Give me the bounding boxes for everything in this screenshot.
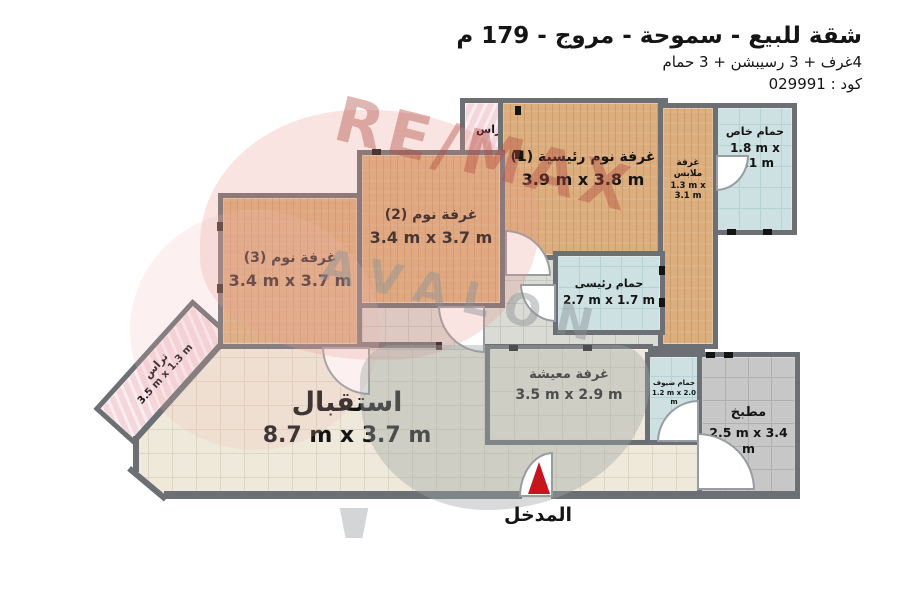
room-name: غرفة نوم رئيسية (1) bbox=[503, 149, 663, 167]
window-tick bbox=[515, 150, 521, 159]
wall-left-vertical bbox=[133, 436, 139, 472]
room-name: حمام رئيسى bbox=[558, 277, 660, 291]
room-name: مطبخ bbox=[702, 405, 795, 421]
wall-bottom-right bbox=[551, 491, 800, 499]
wall-hall-reception bbox=[358, 342, 442, 348]
room-dims: 2.7 m x 1.7 m bbox=[558, 293, 660, 308]
room-dims: 3.4 m x 3.7 m bbox=[362, 228, 500, 248]
room-bedroom-3: غرفة نوم (3) 3.4 m x 3.7 m bbox=[218, 193, 362, 349]
window-tick bbox=[436, 342, 442, 350]
listing-title: شقة للبيع - سموحة - مروج - 179 م bbox=[456, 22, 862, 51]
listing-subtitle: 4غرف + 3 رسيبشن + 3 حمام bbox=[456, 53, 862, 71]
room-main-bathroom: حمام رئيسى 2.7 m x 1.7 m bbox=[553, 251, 665, 335]
room-reception-label: استقبال 8.7 m x 3.7 m bbox=[252, 386, 442, 449]
window-tick bbox=[372, 149, 381, 155]
room-name: غرفة نوم (2) bbox=[362, 207, 500, 225]
watermark-basket-shape bbox=[337, 508, 371, 538]
window-tick bbox=[724, 352, 733, 358]
room-dims: 3.5 m x 2.9 m bbox=[490, 387, 648, 405]
wall-guestbath-top bbox=[650, 346, 705, 354]
room-name: حمام ضيوف bbox=[650, 379, 698, 388]
window-tick bbox=[659, 298, 665, 307]
window-tick bbox=[583, 345, 592, 351]
window-tick bbox=[706, 352, 715, 358]
room-dims: 3.4 m x 3.7 m bbox=[223, 271, 357, 291]
room-bedroom-2: غرفة نوم (2) 3.4 m x 3.7 m bbox=[357, 150, 505, 308]
window-tick bbox=[217, 284, 223, 293]
floor-plan-page: شقة للبيع - سموحة - مروج - 179 م 4غرف + … bbox=[0, 0, 900, 600]
room-name: غرفة نوم (3) bbox=[223, 250, 357, 268]
room-dressing: غرفة ملابس 1.3 m x 3.1 m bbox=[658, 103, 718, 349]
room-name: استقبال bbox=[252, 386, 442, 420]
room-dims: 3.9 m x 3.8 m bbox=[503, 170, 663, 190]
room-name: غرفة ملابس bbox=[663, 158, 713, 181]
entrance-label: المدخل bbox=[488, 504, 588, 526]
room-living: غرفة معيشة 3.5 m x 2.9 m bbox=[485, 344, 653, 445]
listing-code: كود : 029991 bbox=[456, 75, 862, 93]
window-tick bbox=[763, 229, 772, 235]
window-tick bbox=[515, 106, 521, 115]
wall-bottom-left bbox=[164, 491, 522, 499]
room-name: حمام خاص bbox=[718, 125, 792, 139]
window-tick bbox=[509, 345, 518, 351]
header-block: شقة للبيع - سموحة - مروج - 179 م 4غرف + … bbox=[456, 22, 862, 93]
window-tick bbox=[217, 222, 223, 231]
room-dims: 1.3 m x 3.1 m bbox=[663, 181, 713, 202]
window-tick bbox=[727, 229, 736, 235]
room-name: غرفة معيشة bbox=[490, 367, 648, 383]
entrance-arrow-icon bbox=[528, 462, 550, 494]
window-tick bbox=[659, 266, 665, 275]
room-dims: 8.7 m x 3.7 m bbox=[252, 422, 442, 450]
